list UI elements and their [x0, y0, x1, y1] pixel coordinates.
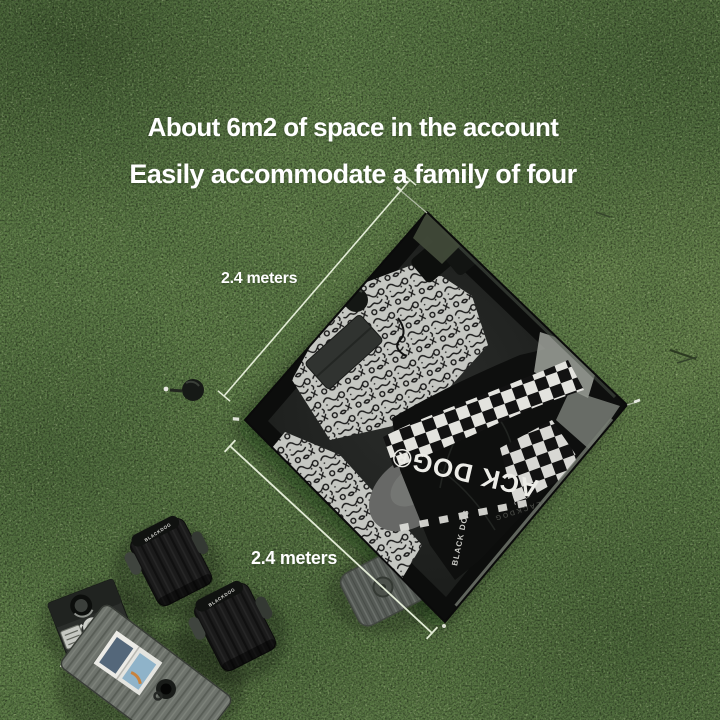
headline-line1: About 6m2 of space in the account — [0, 112, 706, 142]
small-peg — [164, 387, 169, 392]
headline: About 6m2 of space in the account Easily… — [0, 112, 706, 190]
dimension-label-top: 2.4 meters — [221, 270, 297, 288]
headline-line2: Easily accommodate a family of four — [0, 158, 706, 190]
dimension-label-bottom: 2.4 meters — [251, 548, 337, 569]
product-photo-scene: ACK DOG® BLACK DOG BLACKDOG — [0, 0, 720, 720]
stake-marker — [233, 417, 240, 421]
hammer-handle — [170, 390, 182, 391]
stake-marker — [442, 624, 446, 628]
photo-illustration: ACK DOG® BLACK DOG BLACKDOG — [0, 0, 720, 720]
